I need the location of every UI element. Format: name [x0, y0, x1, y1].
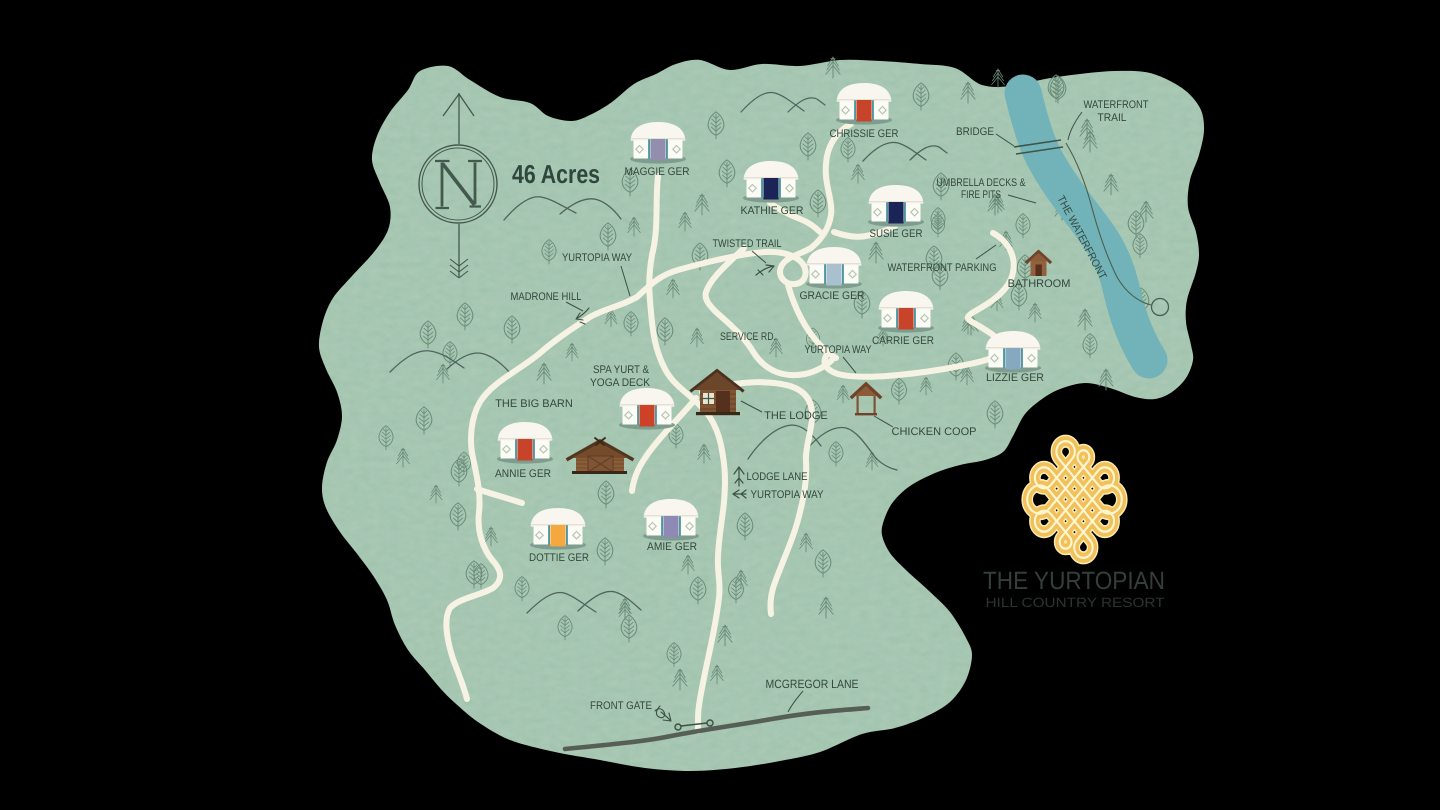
- svg-text:THE BIG BARN: THE BIG BARN: [495, 398, 573, 410]
- svg-text:THE YURTOPIAN: THE YURTOPIAN: [983, 567, 1165, 595]
- svg-text:KATHIE GER: KATHIE GER: [741, 205, 804, 217]
- svg-text:46 Acres: 46 Acres: [512, 159, 600, 189]
- svg-text:CHRISSIE GER: CHRISSIE GER: [830, 128, 899, 140]
- svg-text:BRIDGE: BRIDGE: [956, 126, 994, 138]
- svg-text:TWISTED TRAIL: TWISTED TRAIL: [713, 238, 782, 250]
- svg-text:AMIE GER: AMIE GER: [647, 541, 697, 553]
- svg-text:MCGREGOR LANE: MCGREGOR LANE: [766, 677, 859, 691]
- svg-text:YURTOPIA WAY: YURTOPIA WAY: [562, 252, 633, 264]
- svg-text:YOGA DECK: YOGA DECK: [590, 377, 651, 389]
- svg-text:FRONT GATE: FRONT GATE: [590, 700, 652, 712]
- svg-text:LIZZIE GER: LIZZIE GER: [986, 372, 1044, 384]
- svg-text:TRAIL: TRAIL: [1098, 112, 1127, 124]
- svg-text:SERVICE RD.: SERVICE RD.: [720, 331, 776, 343]
- svg-text:BATHROOM: BATHROOM: [1008, 278, 1071, 290]
- svg-text:CHICKEN COOP: CHICKEN COOP: [892, 426, 977, 438]
- svg-text:SUSIE GER: SUSIE GER: [870, 228, 923, 240]
- svg-text:MAGGIE GER: MAGGIE GER: [625, 166, 690, 178]
- svg-text:YURTOPIA WAY: YURTOPIA WAY: [805, 344, 873, 356]
- svg-text:CARRIE GER: CARRIE GER: [872, 335, 934, 347]
- svg-text:UMBRELLA DECKS &: UMBRELLA DECKS &: [937, 177, 1027, 189]
- svg-text:SPA YURT &: SPA YURT &: [593, 364, 650, 376]
- svg-text:WATERFRONT PARKING: WATERFRONT PARKING: [888, 262, 997, 274]
- svg-text:ANNIE GER: ANNIE GER: [495, 468, 551, 480]
- svg-text:LODGE LANE: LODGE LANE: [747, 471, 808, 483]
- svg-text:MADRONE HILL: MADRONE HILL: [511, 291, 582, 303]
- svg-text:THE LODGE: THE LODGE: [764, 410, 828, 422]
- svg-text:DOTTIE GER: DOTTIE GER: [529, 552, 589, 564]
- svg-text:WATERFRONT: WATERFRONT: [1084, 99, 1149, 111]
- svg-text:YURTOPIA WAY: YURTOPIA WAY: [751, 489, 825, 501]
- svg-text:HILL COUNTRY RESORT: HILL COUNTRY RESORT: [986, 595, 1165, 610]
- svg-text:FIRE PITS: FIRE PITS: [961, 189, 1001, 201]
- svg-text:GRACIE GER: GRACIE GER: [800, 290, 865, 302]
